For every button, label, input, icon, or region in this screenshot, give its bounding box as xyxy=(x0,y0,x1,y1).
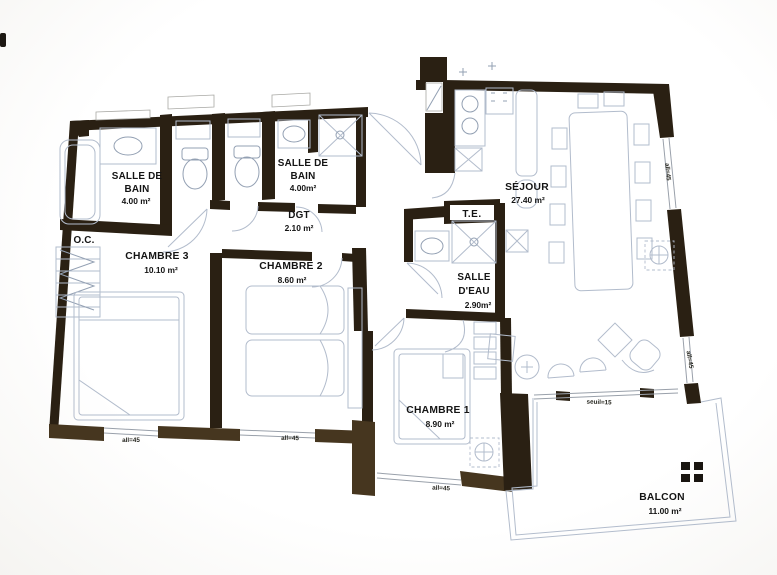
room-area-balcon: 11.00 m² xyxy=(648,506,681,516)
room-area-chambre-1: 8.90 m² xyxy=(426,419,455,429)
toilet-wc1 xyxy=(176,121,210,189)
room-label-salle-de-bain-2-line2: BAIN xyxy=(291,171,316,182)
room-label-balcon: BALCON xyxy=(639,492,685,503)
side-table xyxy=(506,230,528,252)
room-area-dgt: 2.10 m² xyxy=(285,223,314,233)
room-label-te: T.E. xyxy=(462,209,481,220)
balcony-pillar xyxy=(681,462,703,482)
room-area-salle-de-bain-1: 4.00 m² xyxy=(122,196,151,206)
scan-artifact xyxy=(0,33,6,47)
annotation-allege-sejour-upper: all=45 xyxy=(663,163,672,182)
annotation-allege-chambre1: all=45 xyxy=(432,485,451,493)
annotation-allege-chambre2: all=45 xyxy=(281,435,299,442)
room-label-chambre-3: CHAMBRE 3 xyxy=(125,251,188,262)
floor-plan-drawing: SALLE DE BAIN 4.00 m² SALLE DE BAIN 4.00… xyxy=(0,0,777,575)
room-area-salle-de-bain-2: 4.00m² xyxy=(290,183,317,193)
room-label-dgt: DGT xyxy=(288,210,309,221)
room-area-chambre-2: 8.60 m² xyxy=(278,275,307,285)
shower-sde xyxy=(452,221,496,263)
washbasin-sde xyxy=(415,231,449,261)
room-label-salle-deau-line2: D'EAU xyxy=(458,286,489,297)
room-area-chambre-3: 10.10 m² xyxy=(144,265,178,275)
lounge-seating xyxy=(488,323,664,379)
washbasin-sdb2 xyxy=(278,120,310,148)
shower-sdb2 xyxy=(319,115,362,156)
room-label-salle-de-bain-2-line1: SALLE DE xyxy=(278,158,329,169)
room-label-salle-deau-line1: SALLE xyxy=(457,272,491,283)
dining-table xyxy=(549,92,652,291)
annotation-allege-chambre3: all=45 xyxy=(122,437,140,444)
ceiling-light-sejour xyxy=(645,241,674,270)
room-label-salle-de-bain-1-line1: SALLE DE xyxy=(112,171,163,182)
room-label-oc: O.C. xyxy=(73,235,94,246)
toilet-wc2 xyxy=(228,119,260,187)
room-label-chambre-2: CHAMBRE 2 xyxy=(259,261,322,272)
ceiling-light-chambre1 xyxy=(470,438,499,467)
room-label-chambre-1: CHAMBRE 1 xyxy=(406,405,469,416)
bed-chambre2 xyxy=(246,286,362,408)
bed-chambre3 xyxy=(74,292,184,420)
annotation-seuil-balcon: seuil=15 xyxy=(586,399,612,407)
floor-plan-page: SALLE DE BAIN 4.00 m² SALLE DE BAIN 4.00… xyxy=(0,0,777,575)
room-area-salle-deau: 2.90m² xyxy=(465,300,492,310)
room-label-sejour: SÉJOUR xyxy=(505,180,549,193)
washbasin-sdb1 xyxy=(100,128,156,164)
room-label-salle-de-bain-1-line2: BAIN xyxy=(125,184,150,195)
room-area-sejour: 27.40 m² xyxy=(511,195,545,205)
